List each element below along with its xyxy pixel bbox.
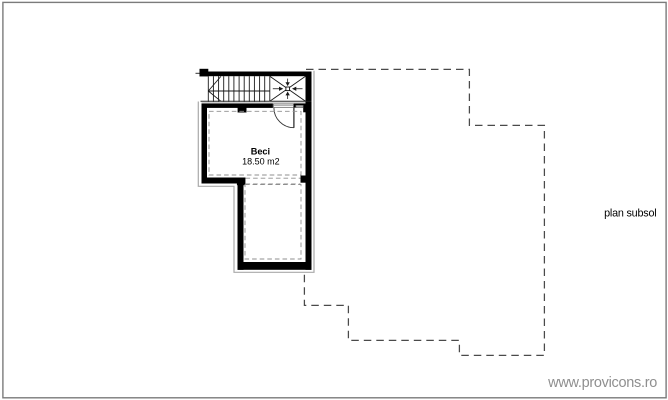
svg-text:18.50 m2: 18.50 m2 — [242, 156, 280, 166]
svg-text:plan subsol: plan subsol — [604, 207, 656, 219]
svg-text:Beci: Beci — [251, 147, 270, 157]
svg-text:www.provicons.ro: www.provicons.ro — [547, 375, 657, 391]
